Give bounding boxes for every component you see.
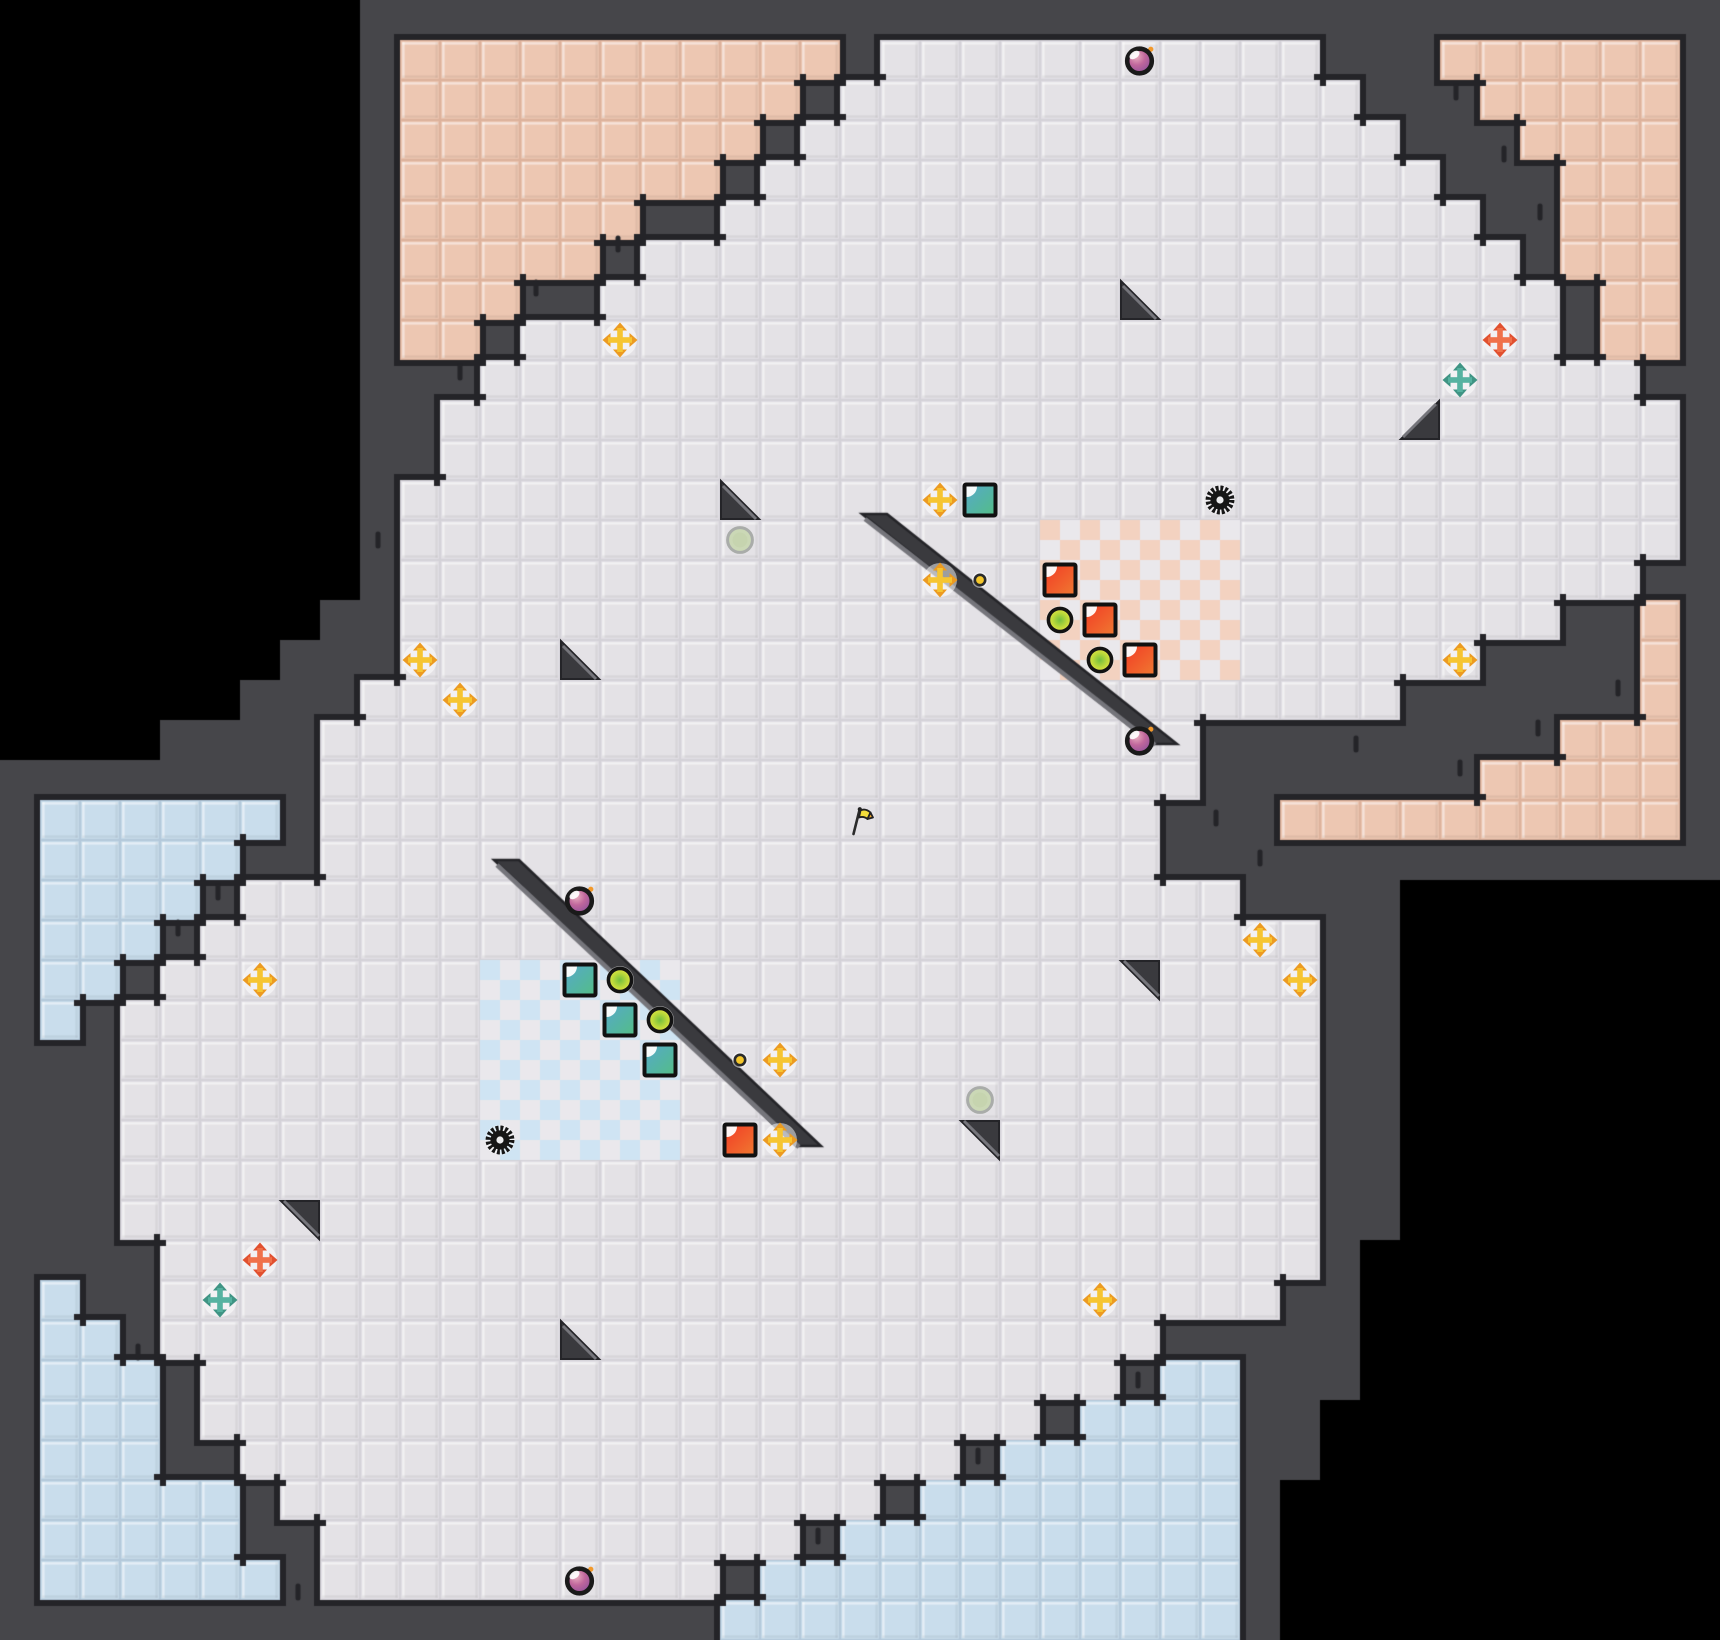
bomb[interactable] xyxy=(560,1560,600,1600)
paper-tile-teal[interactable] xyxy=(560,960,600,1000)
wall-spike xyxy=(1400,400,1440,440)
move-cross-yellow[interactable] xyxy=(1240,920,1280,960)
move-cross-yellow[interactable] xyxy=(400,640,440,680)
pale-orb[interactable] xyxy=(720,520,760,560)
bomb[interactable] xyxy=(1120,720,1160,760)
move-cross-yellow[interactable] xyxy=(1080,1280,1120,1320)
paper-tile-teal[interactable] xyxy=(600,1000,640,1040)
gear-trap[interactable] xyxy=(1200,480,1240,520)
wall-spike xyxy=(280,1200,320,1240)
coin[interactable] xyxy=(1040,600,1080,640)
move-cross-yellow[interactable] xyxy=(1280,960,1320,1000)
paper-tile-red[interactable] xyxy=(1040,560,1080,600)
coin[interactable] xyxy=(1080,640,1120,680)
wall-spike xyxy=(720,480,760,520)
wall-spike xyxy=(560,640,600,680)
coin[interactable] xyxy=(640,1000,680,1040)
move-cross-teal[interactable] xyxy=(200,1280,240,1320)
pale-orb[interactable] xyxy=(960,1080,1000,1120)
wall-spike xyxy=(1120,960,1160,1000)
bomb[interactable] xyxy=(560,880,600,920)
move-cross-yellow[interactable] xyxy=(1440,640,1480,680)
gear-trap[interactable] xyxy=(480,1120,520,1160)
move-cross-yellow[interactable] xyxy=(600,320,640,360)
move-cross-yellow[interactable] xyxy=(920,480,960,520)
move-cross-orange[interactable] xyxy=(1480,320,1520,360)
paper-tile-red[interactable] xyxy=(1120,640,1160,680)
move-cross-yellow[interactable] xyxy=(760,1120,800,1160)
move-cross-yellow[interactable] xyxy=(920,560,960,600)
flag-marker[interactable] xyxy=(840,800,880,840)
move-cross-yellow[interactable] xyxy=(440,680,480,720)
bomb[interactable] xyxy=(1120,40,1160,80)
wall-spike xyxy=(560,1320,600,1360)
move-cross-teal[interactable] xyxy=(1440,360,1480,400)
paper-tile-teal[interactable] xyxy=(960,480,1000,520)
wall-spike xyxy=(1120,280,1160,320)
game-map xyxy=(0,0,1720,1640)
coin-dot[interactable] xyxy=(720,1040,760,1080)
wall-spike xyxy=(960,1120,1000,1160)
paper-tile-teal[interactable] xyxy=(640,1040,680,1080)
paper-tile-red[interactable] xyxy=(720,1120,760,1160)
coin-dot[interactable] xyxy=(960,560,1000,600)
move-cross-yellow[interactable] xyxy=(240,960,280,1000)
paper-tile-red[interactable] xyxy=(1080,600,1120,640)
move-cross-yellow[interactable] xyxy=(760,1040,800,1080)
coin[interactable] xyxy=(600,960,640,1000)
move-cross-orange[interactable] xyxy=(240,1240,280,1280)
entity-layer xyxy=(0,0,1720,1640)
